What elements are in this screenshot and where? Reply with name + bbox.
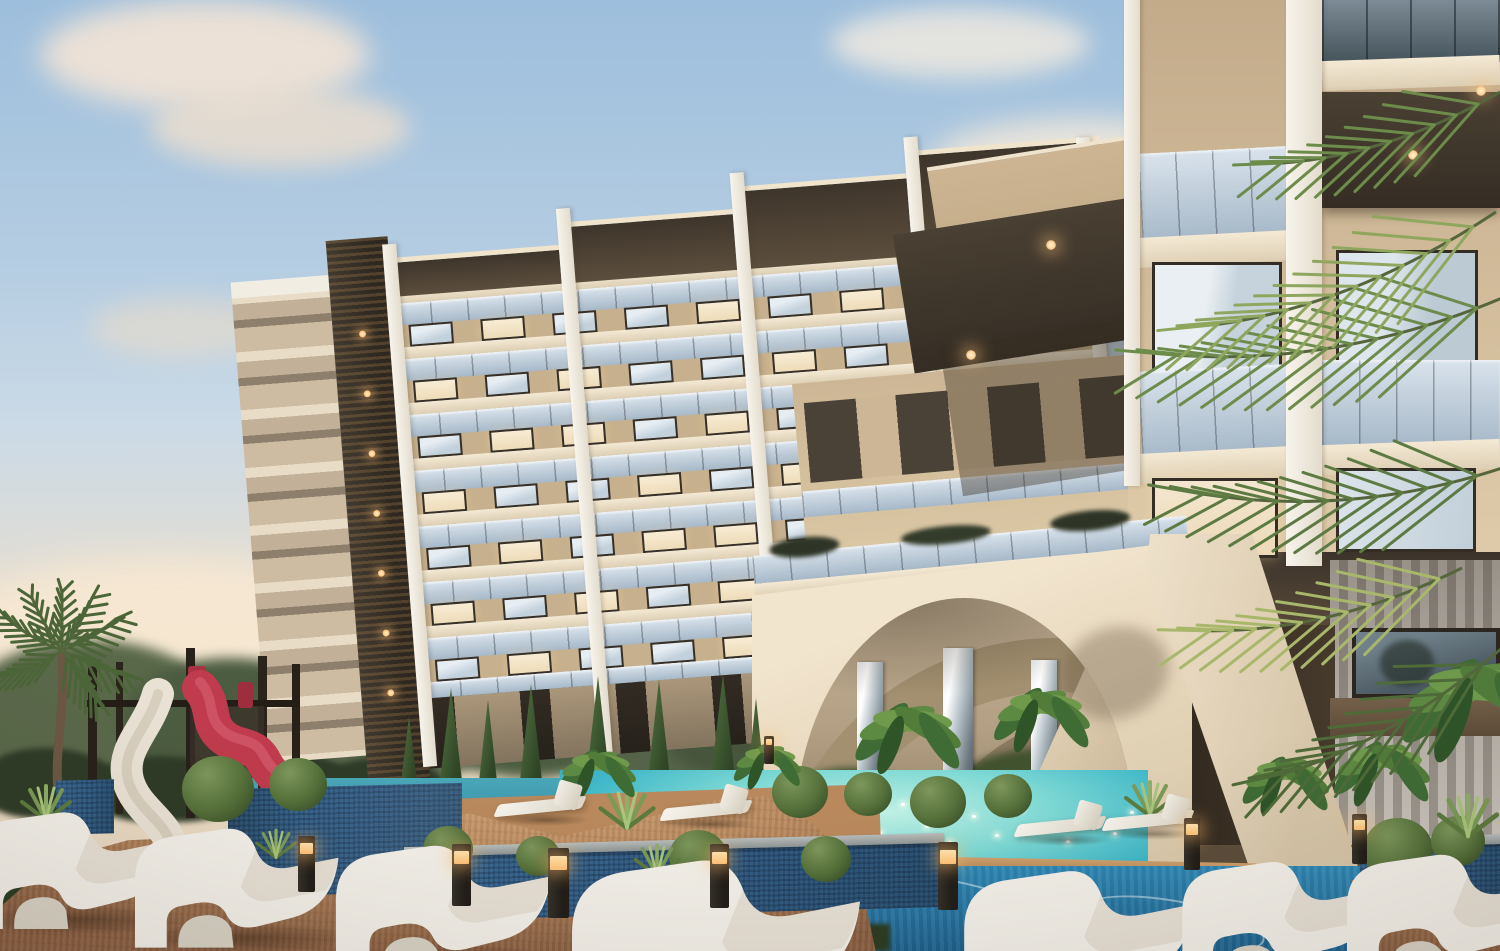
bollard-light: [452, 844, 471, 906]
bollard-glow: [550, 856, 567, 870]
bollard-glow: [712, 852, 727, 865]
soffit-light: [1046, 240, 1056, 250]
render-canvas: [0, 0, 1500, 951]
bollard-glow: [454, 851, 469, 863]
bollard-light: [1184, 818, 1200, 870]
lighting-layer: [0, 0, 1500, 951]
bollard-glow: [766, 739, 772, 745]
bollard-light: [938, 842, 958, 910]
bollard-glow: [940, 850, 956, 864]
bollard-light: [298, 836, 315, 892]
bollard-light: [1352, 814, 1367, 864]
bollard-glow: [1186, 824, 1198, 834]
bollard-glow: [1354, 820, 1365, 830]
soffit-light: [1476, 86, 1486, 96]
bollard-light: [548, 848, 569, 918]
bollard-light: [764, 736, 774, 764]
soffit-light: [966, 350, 976, 360]
soffit-light: [1408, 150, 1418, 160]
bollard-light: [710, 844, 729, 908]
bollard-glow: [300, 843, 313, 854]
